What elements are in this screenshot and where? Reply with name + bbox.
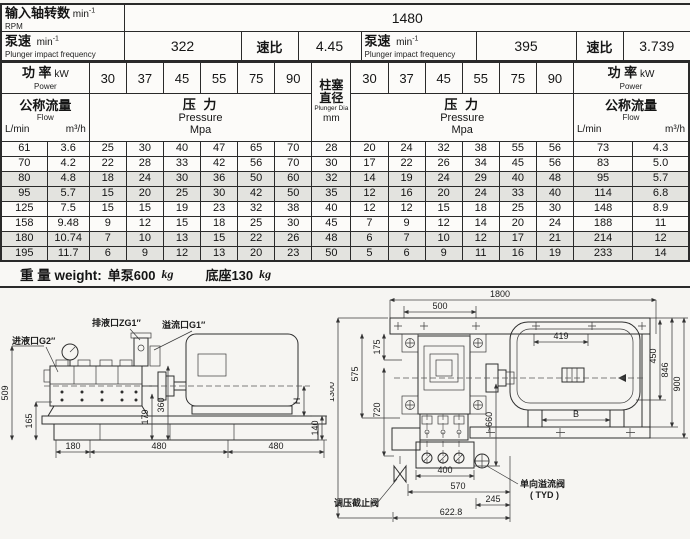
table-cell: 83	[573, 156, 632, 171]
stop-valve	[378, 456, 406, 502]
power-value-header: 45	[425, 62, 462, 93]
power-label-left: 功 率 kW Power	[1, 62, 89, 93]
table-cell: 15	[89, 201, 126, 216]
table-cell: 4.3	[633, 141, 689, 156]
rpm-value: 1480	[124, 4, 690, 32]
table-cell: 95	[1, 186, 47, 201]
table-cell: 19	[388, 171, 425, 186]
table-cell: 28	[126, 156, 163, 171]
table-cell: 24	[425, 171, 462, 186]
table-cell: 34	[462, 156, 499, 171]
power-value-header: 37	[388, 62, 425, 93]
table-cell: 24	[388, 141, 425, 156]
table-cell: 16	[499, 246, 536, 261]
table-cell: 233	[573, 246, 632, 261]
flow-header-right: 公称流量 Flow L/minm³/h	[573, 93, 689, 141]
table-cell: 18	[201, 216, 238, 231]
table-row: 804.818243036506032141924294048955.7	[1, 171, 689, 186]
table-cell: 70	[275, 156, 312, 171]
table-cell: 9	[89, 216, 126, 231]
stop-valve-label: 调压截止阀	[334, 497, 379, 508]
table-cell: 12	[425, 216, 462, 231]
table-cell: 50	[238, 171, 275, 186]
power-value-header: 30	[89, 62, 126, 93]
table-cell: 26	[425, 156, 462, 171]
table-cell: 30	[536, 201, 573, 216]
power-value-header: 75	[238, 62, 275, 93]
table-cell: 45	[499, 156, 536, 171]
table-row: 955.7152025304250351216202433401146.8	[1, 186, 689, 201]
table-cell: 42	[201, 156, 238, 171]
table-cell: 45	[312, 216, 351, 231]
table-cell: 20	[238, 246, 275, 261]
table-cell: 25	[499, 201, 536, 216]
table-cell: 25	[163, 186, 200, 201]
table-cell: 50	[312, 246, 351, 261]
dim-label: 179	[140, 410, 150, 425]
table-cell: 17	[499, 231, 536, 246]
table-cell: 20	[351, 141, 388, 156]
power-label-right: 功 率 kW Power	[573, 62, 689, 93]
dim-label: 570	[450, 481, 465, 491]
table-cell: 180	[1, 231, 47, 246]
table-cell: 40	[499, 171, 536, 186]
table-cell: 50	[275, 186, 312, 201]
table-cell: 9	[126, 246, 163, 261]
overflow-port-label: 溢流口G1″	[162, 319, 206, 330]
table-cell: 4.2	[47, 156, 89, 171]
table-cell: 12	[388, 201, 425, 216]
check-valve-tyd	[475, 454, 518, 484]
table-cell: 12	[126, 216, 163, 231]
table-cell: 14	[633, 246, 689, 261]
table-cell: 9	[425, 246, 462, 261]
table-cell: 5	[351, 246, 388, 261]
table-cell: 14	[462, 216, 499, 231]
table-cell: 19	[536, 246, 573, 261]
table-cell: 36	[201, 171, 238, 186]
table-cell: 33	[163, 156, 200, 171]
table-cell: 18	[462, 201, 499, 216]
power-value-header: 55	[201, 62, 238, 93]
power-value-header: 30	[351, 62, 388, 93]
table-cell: 13	[163, 231, 200, 246]
dim-label: 500	[432, 301, 447, 311]
dim-label: 622.8	[440, 507, 463, 517]
table-cell: 25	[89, 141, 126, 156]
table-cell: 42	[238, 186, 275, 201]
table-cell: 125	[1, 201, 47, 216]
base-frame	[42, 406, 326, 440]
table-row: 18010.747101315222648671012172121412	[1, 231, 689, 246]
table-cell: 25	[238, 216, 275, 231]
power-value-header: 37	[126, 62, 163, 93]
table-cell: 195	[1, 246, 47, 261]
table-cell: 12	[351, 186, 388, 201]
table-cell: 4.8	[47, 171, 89, 186]
base-weight-unit: kg	[259, 267, 271, 282]
table-cell: 40	[536, 186, 573, 201]
table-cell: 28	[312, 141, 351, 156]
pump-crankcase-top	[392, 334, 486, 464]
table-cell: 148	[573, 201, 632, 216]
table-cell: 11	[462, 246, 499, 261]
table-cell: 60	[275, 171, 312, 186]
dim-label: 165	[24, 414, 34, 429]
power-value-header: 90	[275, 62, 312, 93]
dim-label: 400	[437, 465, 452, 475]
table-cell: 32	[425, 141, 462, 156]
table-cell: 29	[462, 171, 499, 186]
dim-label: 846	[660, 363, 670, 378]
table-cell: 38	[275, 201, 312, 216]
rpm-label-cn: 输入轴转数	[5, 5, 70, 20]
pressure-header-right: 压 力 Pressure Mpa	[351, 93, 574, 141]
check-valve-label: 单向溢流阀	[520, 478, 565, 489]
table-cell: 56	[238, 156, 275, 171]
plunger-dia-header: 柱塞 直径 Plunger Dia mm	[312, 62, 351, 141]
table-cell: 40	[312, 201, 351, 216]
table-row: 704.222283342567030172226344556835.0	[1, 156, 689, 171]
table-cell: 23	[275, 246, 312, 261]
ratio-label-left: 速比	[241, 32, 298, 61]
table-cell: 10.74	[47, 231, 89, 246]
table-cell: 6	[89, 246, 126, 261]
weight-note: 重 量 weight: 单泵600 kg 底座130 kg	[0, 262, 690, 288]
pump-speed-value-left: 322	[124, 32, 241, 61]
table-cell: 15	[163, 216, 200, 231]
pressure-gauge-icon	[62, 344, 78, 366]
table-cell: 214	[573, 231, 632, 246]
table-cell: 95	[573, 171, 632, 186]
discharge-port-label: 排液口ZG1″	[92, 317, 142, 328]
table-cell: 7	[89, 231, 126, 246]
table-cell: 158	[1, 216, 47, 231]
table-cell: 18	[89, 171, 126, 186]
table-cell: 26	[275, 231, 312, 246]
table-cell: 24	[462, 186, 499, 201]
table-cell: 40	[163, 141, 200, 156]
power-value-header: 55	[462, 62, 499, 93]
dim-label: 575	[350, 367, 360, 382]
table-cell: 16	[388, 186, 425, 201]
check-valve-label2: ( TYD )	[530, 490, 559, 500]
table-cell: 15	[89, 186, 126, 201]
table-cell: 48	[312, 231, 351, 246]
table-cell: 55	[499, 141, 536, 156]
table-cell: 3.6	[47, 141, 89, 156]
table-cell: 17	[351, 156, 388, 171]
dim-label: 140	[310, 421, 320, 436]
table-cell: 5.7	[633, 171, 689, 186]
weight-label: 重 量 weight:	[20, 264, 102, 284]
table-cell: 23	[201, 201, 238, 216]
table-cell: 6	[351, 231, 388, 246]
pump-speed-label-right: 泵速 min-1 Plunger impact frequency	[361, 32, 476, 61]
dim-label: 480	[151, 441, 166, 451]
power-value-header: 75	[499, 62, 536, 93]
table-cell: 7	[351, 216, 388, 231]
table-cell: 30	[312, 156, 351, 171]
rpm-label-en: RPM	[5, 22, 121, 31]
table-cell: 7	[388, 231, 425, 246]
pump-weight: 单泵600	[108, 265, 156, 284]
table-cell: 19	[163, 201, 200, 216]
table-cell: 20	[499, 216, 536, 231]
table-cell: 30	[163, 171, 200, 186]
pump-weight-unit: kg	[161, 267, 173, 282]
ratio-label-right: 速比	[576, 32, 623, 61]
table-cell: 30	[275, 216, 312, 231]
rpm-label-cell: 输入轴转数 min-1 RPM	[1, 4, 124, 32]
table-cell: 12	[633, 231, 689, 246]
table-row: 1257.5151519233238401212151825301488.9	[1, 201, 689, 216]
pump-top-view-drawing: 1800 500 419	[330, 288, 690, 531]
dim-label: 450	[648, 349, 658, 364]
base-weight: 底座130	[205, 265, 253, 284]
table-cell: 15	[425, 201, 462, 216]
datasheet-page: 输入轴转数 min-1 RPM 1480 泵速 min-1 Plunger im…	[0, 0, 690, 531]
table-cell: 47	[201, 141, 238, 156]
table-row: 1589.489121518253045791214202418811	[1, 216, 689, 231]
speed-header-table: 输入轴转数 min-1 RPM 1480 泵速 min-1 Plunger im…	[0, 3, 690, 61]
table-cell: 35	[312, 186, 351, 201]
table-cell: 11	[633, 216, 689, 231]
table-cell: 9	[388, 216, 425, 231]
table-cell: 30	[201, 186, 238, 201]
table-cell: 22	[89, 156, 126, 171]
table-row: 613.625304047657028202432385556734.3	[1, 141, 689, 156]
table-cell: 12	[462, 231, 499, 246]
dim-label: 419	[553, 331, 568, 341]
table-cell: 32	[312, 171, 351, 186]
table-cell: 20	[126, 186, 163, 201]
dim-label: H	[292, 398, 302, 405]
pump-speed-label-left: 泵速 min-1 Plunger impact frequency	[1, 32, 124, 61]
dim-label: 480	[268, 441, 283, 451]
table-cell: 9.48	[47, 216, 89, 231]
dim-label: 720	[372, 403, 382, 418]
pump-side-view-drawing: 进液口G2″ 排液口ZG1″ 溢流口G1″	[0, 288, 330, 531]
table-cell: 22	[388, 156, 425, 171]
power-value-header: 45	[163, 62, 200, 93]
dim-label: 900	[672, 377, 682, 392]
dim-label: 245	[485, 494, 500, 504]
table-cell: 73	[573, 141, 632, 156]
table-cell: 8.9	[633, 201, 689, 216]
table-cell: 56	[536, 141, 573, 156]
dim-label: 509	[0, 386, 10, 401]
table-cell: 11.7	[47, 246, 89, 261]
table-cell: 70	[1, 156, 47, 171]
dim-label: 1300	[330, 382, 336, 402]
table-cell: 38	[462, 141, 499, 156]
motor-side	[186, 334, 298, 414]
dim-label: 1800	[490, 289, 510, 299]
table-cell: 6	[388, 246, 425, 261]
table-cell: 12	[351, 201, 388, 216]
table-cell: 24	[126, 171, 163, 186]
table-cell: 30	[126, 141, 163, 156]
table-cell: 114	[573, 186, 632, 201]
spec-table: 功 率 kW Power 30 37 45 55 75 90 柱塞 直径 Plu…	[0, 61, 690, 262]
table-cell: 5.7	[47, 186, 89, 201]
table-cell: 65	[238, 141, 275, 156]
table-cell: 14	[351, 171, 388, 186]
table-cell: 20	[425, 186, 462, 201]
table-cell: 80	[1, 171, 47, 186]
dim-label: 175	[372, 340, 382, 355]
table-cell: 24	[536, 216, 573, 231]
pump-body	[44, 360, 142, 406]
table-cell: 10	[425, 231, 462, 246]
outline-drawings: 进液口G2″ 排液口ZG1″ 溢流口G1″	[0, 288, 690, 531]
table-cell: 7.5	[47, 201, 89, 216]
power-value-header: 90	[536, 62, 573, 93]
table-cell: 22	[238, 231, 275, 246]
table-cell: 15	[201, 231, 238, 246]
table-cell: 48	[536, 171, 573, 186]
table-cell: 6.8	[633, 186, 689, 201]
pump-speed-value-right: 395	[476, 32, 576, 61]
table-cell: 188	[573, 216, 632, 231]
dim-label: 180	[65, 441, 80, 451]
table-cell: 12	[163, 246, 200, 261]
table-cell: 10	[126, 231, 163, 246]
table-cell: 13	[201, 246, 238, 261]
ratio-value-left: 4.45	[298, 32, 361, 61]
table-cell: 21	[536, 231, 573, 246]
table-cell: 32	[238, 201, 275, 216]
table-cell: 15	[126, 201, 163, 216]
inlet-port-label: 进液口G2″	[12, 335, 56, 346]
table-cell: 56	[536, 156, 573, 171]
table-cell: 33	[499, 186, 536, 201]
table-cell: 61	[1, 141, 47, 156]
dim-label: 360	[156, 398, 166, 413]
table-cell: 5.0	[633, 156, 689, 171]
dim-label: ~660	[484, 412, 494, 432]
dim-label: B	[573, 409, 579, 419]
ratio-value-right: 3.739	[623, 32, 690, 61]
table-row: 19511.769121320235056911161923314	[1, 246, 689, 261]
pressure-header-left: 压 力 Pressure Mpa	[89, 93, 312, 141]
table-cell: 70	[275, 141, 312, 156]
flow-header-left: 公称流量 Flow L/minm³/h	[1, 93, 89, 141]
spec-table-body: 613.625304047657028202432385556734.3704.…	[1, 141, 689, 261]
